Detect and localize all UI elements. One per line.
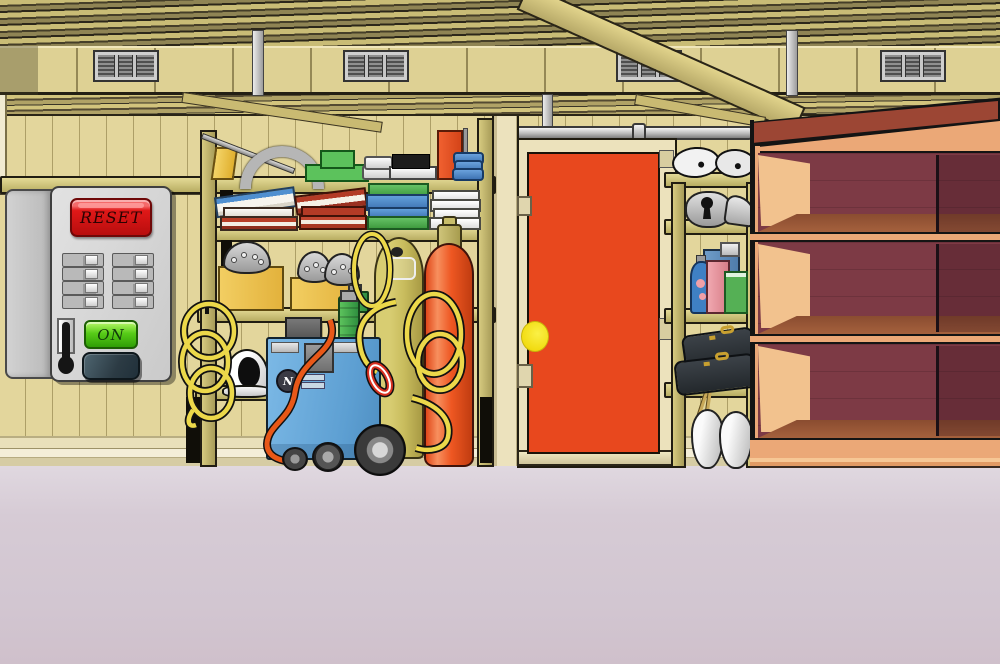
bookcase-band — [750, 334, 1000, 344]
panel-door[interactable] — [5, 189, 53, 379]
bookcase-side-panel — [758, 244, 810, 328]
wall-stud — [492, 116, 519, 466]
vent-bar — [115, 55, 118, 77]
vent-bar — [383, 55, 386, 77]
button-gloss — [78, 203, 144, 208]
canister-cap — [720, 242, 740, 257]
briefcase-handle — [715, 351, 730, 361]
ceiling-rafters-top — [0, 0, 1000, 46]
can-dot — [699, 293, 706, 300]
wall-corner-trim — [0, 95, 7, 180]
briefcase-handle — [720, 325, 735, 335]
bookcase-corner-shade — [939, 346, 1000, 436]
mask-dot — [698, 161, 704, 167]
ceiling-shade — [0, 46, 38, 95]
door[interactable] — [527, 152, 660, 454]
green-book — [367, 216, 429, 230]
red-book — [299, 215, 367, 230]
disc-rod — [463, 128, 468, 155]
on-button[interactable]: ON — [84, 320, 138, 349]
air-vent — [345, 52, 407, 80]
green-spray-can[interactable] — [724, 271, 748, 314]
floor — [0, 466, 1000, 664]
breaker-switch[interactable] — [112, 253, 154, 267]
tank-hoses — [354, 234, 462, 450]
vertical-pipe — [786, 30, 798, 96]
bookcase-band — [750, 232, 1000, 242]
breaker-switch[interactable] — [62, 295, 104, 309]
garage-scene: N — [0, 0, 1000, 664]
orange-power-cable — [267, 320, 332, 462]
breaker-switch[interactable] — [112, 295, 154, 309]
shelf-post — [671, 182, 686, 468]
mask-dot — [735, 163, 741, 169]
air-vent — [95, 52, 157, 80]
vent-bar — [365, 55, 368, 77]
power-lever-knob[interactable] — [58, 356, 74, 374]
bookcase-corner-shade — [939, 155, 1000, 232]
yellow-box — [211, 147, 239, 180]
air-vent — [882, 52, 944, 80]
reset-label: RESET — [80, 208, 142, 227]
vertical-pipe — [252, 30, 264, 96]
black-box — [392, 154, 430, 169]
can-dot — [696, 279, 705, 288]
briefcase-clasp — [709, 335, 715, 340]
reset-button[interactable]: RESET — [70, 198, 152, 237]
on-label: ON — [97, 326, 124, 344]
hanging-cable-coil[interactable] — [182, 302, 234, 426]
breaker-switch[interactable] — [62, 281, 104, 295]
dark-power-button[interactable] — [82, 352, 140, 380]
vent-bar — [133, 55, 136, 77]
machine-wheel-small — [282, 447, 308, 471]
door-strike-plate — [517, 364, 533, 388]
torch-handle[interactable] — [366, 362, 394, 396]
door-latch-plate — [517, 196, 532, 216]
vent-bar — [920, 55, 923, 77]
bookcase-plinth — [750, 438, 1000, 468]
green-box — [320, 150, 355, 169]
breaker-switch[interactable] — [112, 267, 154, 281]
breaker-switch[interactable] — [62, 253, 104, 267]
bookcase-side-panel — [758, 346, 810, 432]
white-urn — [719, 411, 753, 469]
red-book — [220, 216, 298, 231]
bookcase-corner-shade — [939, 244, 1000, 332]
machine-wheel — [312, 442, 344, 472]
vent-bar — [902, 55, 905, 77]
door-knob[interactable] — [521, 321, 549, 352]
hoses-overlay — [170, 230, 490, 475]
breaker-switch[interactable] — [112, 281, 154, 295]
breaker-switch[interactable] — [62, 267, 104, 281]
blue-disc — [452, 168, 484, 181]
briefcase-clasp — [704, 362, 710, 367]
cart-wheel — [354, 424, 406, 476]
